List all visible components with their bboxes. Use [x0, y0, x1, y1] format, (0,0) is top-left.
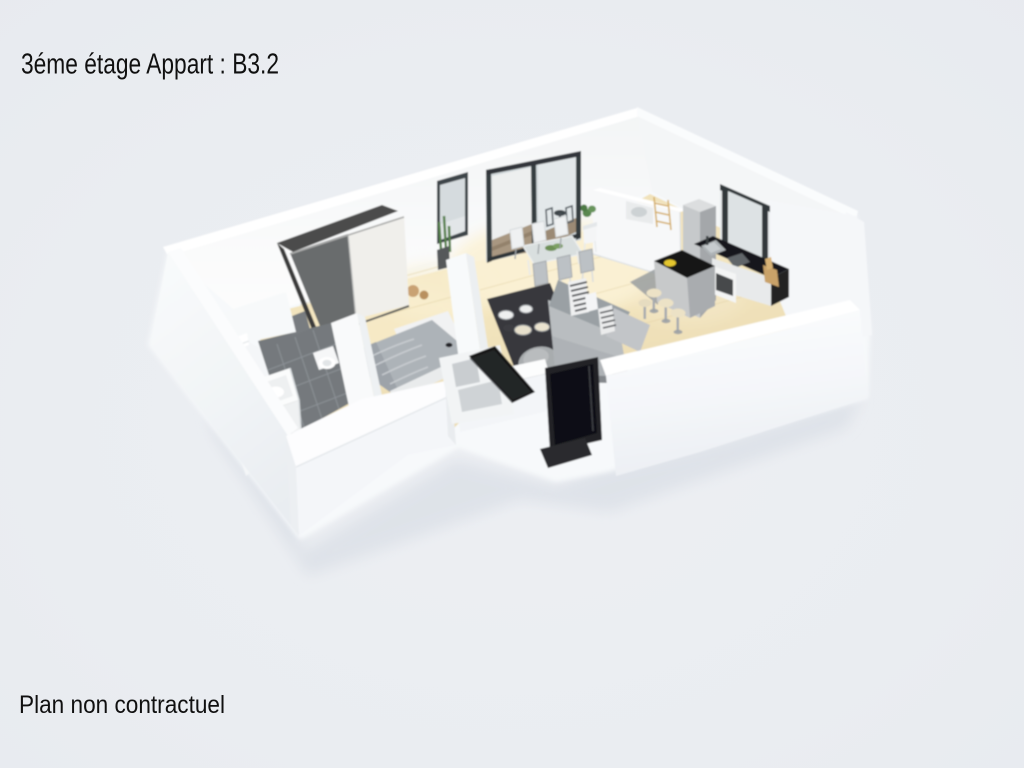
svg-text:3éme étage Appart : B3.2: 3éme étage Appart : B3.2 [21, 49, 279, 81]
svg-text:Plan non contractuel: Plan non contractuel [19, 691, 225, 719]
